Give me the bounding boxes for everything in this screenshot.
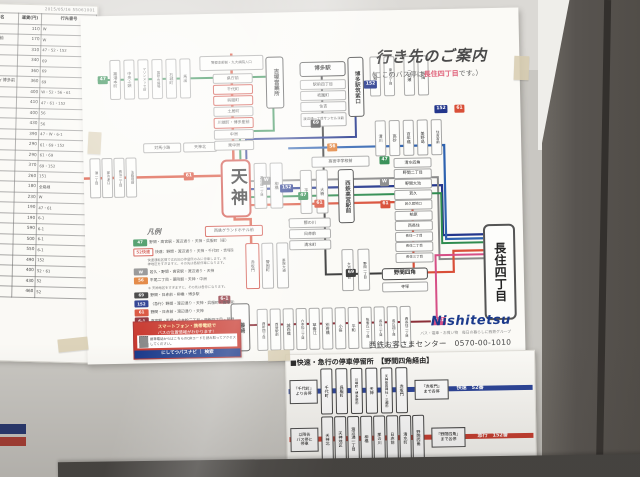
edge-sticker bbox=[0, 437, 26, 446]
route-badge: 47 bbox=[298, 192, 308, 200]
route-line-magenta bbox=[435, 254, 484, 321]
stop-node: 天神 bbox=[220, 159, 251, 218]
stop-node: 渡辺通一丁目 bbox=[254, 163, 268, 209]
stop-node: 千代町 bbox=[213, 84, 253, 95]
stop-node: 築港本町 bbox=[109, 60, 121, 100]
stop-node: 馬出 bbox=[179, 58, 191, 98]
case-frame-right bbox=[542, 0, 640, 477]
stop-node: 博多駅 bbox=[299, 61, 345, 77]
stop-node: 西新四丁目 bbox=[257, 309, 269, 351]
qr-code-icon bbox=[139, 336, 148, 347]
legend-badge: 52快速 bbox=[133, 248, 153, 257]
legend-badge: 47 bbox=[133, 239, 147, 246]
express-stops-panel: ■快速・急行の停車停留所 【野間四角経由】 『千代町』 より各停千代町呉服町川端… bbox=[285, 350, 537, 472]
express-stop: 呉服町 bbox=[335, 368, 348, 414]
stop-node: 六本松二丁目 bbox=[296, 308, 308, 350]
route-badge: 69 bbox=[346, 269, 356, 277]
stop-node: 百年橋 bbox=[403, 120, 415, 156]
stop-node: 対馬小路 bbox=[143, 143, 181, 154]
masking-tape bbox=[514, 56, 530, 81]
masking-tape bbox=[268, 350, 290, 362]
subtitle-post: です。） bbox=[459, 69, 483, 77]
stop-node: 長住三丁目 bbox=[395, 252, 433, 263]
legend-text: 野間・高宮駅・渡辺通り・天神・呉服町（篠） bbox=[149, 238, 229, 246]
legend-text: 野間・日赤前・渡辺通り・天神 bbox=[151, 308, 204, 315]
route-badge: 61 bbox=[380, 200, 390, 208]
stop-node: 石城町 bbox=[165, 59, 177, 99]
route-map-poster: 築港本町中央ふ頭マリンメッセ前国際会議場石城町馬出港一丁目那の津口長浜二丁目法務… bbox=[80, 7, 525, 364]
stop-node: 清水四角 bbox=[393, 157, 431, 168]
stop-node: 法務局前 bbox=[125, 157, 137, 197]
legend-row: 56平尾二丁目・薬院駅・天神・中洲 bbox=[134, 275, 234, 284]
stop-node: マリンメッセ前 bbox=[137, 59, 149, 99]
stop-node: 博多駅筑紫口 bbox=[347, 57, 364, 117]
stop-node: 那の川 bbox=[289, 217, 331, 228]
legend-row: 61野間・日赤前・渡辺通り・天神 bbox=[135, 307, 235, 316]
stop-node: 東中洲 bbox=[214, 140, 254, 151]
stop-node: 若久 bbox=[394, 189, 432, 200]
stop-node: 別府橋 bbox=[322, 307, 334, 349]
route-badge: 61 bbox=[314, 200, 324, 208]
stop-node: 柏原 bbox=[395, 210, 433, 221]
stop-node: 清水町 bbox=[289, 239, 331, 250]
route-badge: W bbox=[262, 177, 271, 185]
stop-node: 住吉宮前 bbox=[431, 119, 443, 155]
express-left-label: 『千代町』 より各停 bbox=[289, 380, 317, 404]
legend-row: 69野間・日赤前・柳橋・博多駅 bbox=[134, 290, 234, 299]
express-row: 『千代町』 より各停千代町呉服町川端町・博多座前天神天神警固神社・三越前赤坂門『… bbox=[288, 365, 533, 415]
legend-row: 152〈急行〉野間・渡辺通り・天神・呉服町・吉塚営業所 bbox=[134, 299, 234, 308]
legend-text: 〈急行〉野間・渡辺通り・天神・呉服町・吉塚営業所 bbox=[150, 299, 234, 307]
stop-node: 那の津口 bbox=[101, 158, 113, 198]
stop-node: 住吉 bbox=[300, 101, 346, 112]
edge-sticker bbox=[0, 424, 26, 434]
stop-node: 西長住 bbox=[395, 220, 433, 231]
legend-note: 快速運転区間では右記の停留所のみに停車します。天神地区をすぎますと、その先は各駅… bbox=[147, 257, 229, 267]
route-badge: 61 bbox=[184, 172, 194, 180]
stop-node: 駅前四丁目 bbox=[300, 79, 346, 90]
legend-badge: W bbox=[134, 269, 148, 276]
frame-groove bbox=[596, 0, 611, 477]
case-frame-bottom bbox=[58, 454, 640, 477]
express-stop: 赤坂門 bbox=[395, 367, 408, 413]
express-right-label: 『赤坂門』 まで各停 bbox=[414, 379, 448, 400]
express-stop: 渡辺通一丁目 bbox=[347, 416, 360, 462]
route-badge: 47 bbox=[98, 76, 108, 84]
stop-node: 長住二丁目 bbox=[395, 241, 433, 252]
legend-row: 52快速快速：野間・渡辺通り・天神・千代町・吉塚営業所 bbox=[133, 246, 233, 257]
stop-node: 平和 bbox=[348, 307, 360, 349]
route-badge: 56 bbox=[327, 143, 337, 151]
express-stop: 千代町 bbox=[320, 368, 333, 414]
stop-node: 警固町 bbox=[261, 243, 274, 289]
stop-node: 中央ふ頭 bbox=[123, 60, 135, 100]
stop-node: 美野島 bbox=[417, 119, 429, 155]
stop-node: 西新駅前 bbox=[270, 308, 282, 350]
express-stop: 天神北 bbox=[321, 416, 334, 462]
fare-col-fare: 運賃(円) bbox=[18, 13, 41, 24]
stop-node: 西鉄高宮駅前 bbox=[338, 169, 355, 223]
stop-node: 薬院大通 bbox=[276, 242, 289, 288]
stop-node: 港一丁目 bbox=[89, 158, 101, 198]
stop-node: 川端町・博多座前 bbox=[214, 117, 254, 129]
express-left-label: 以降各 バス停に 停車 bbox=[290, 428, 318, 452]
stop-node: 若久団地口 bbox=[394, 199, 432, 210]
fare-row: 県庁九大病院前46052 bbox=[0, 285, 90, 299]
stop-node: 警察本部前・九大病院入口 bbox=[199, 55, 263, 71]
stop-node: 清川 bbox=[375, 120, 387, 156]
route-badge: 61 bbox=[454, 105, 464, 113]
stop-node: 土居町 bbox=[213, 106, 253, 117]
legend-text: 若久・野間・高宮駅・渡辺通り・天神 bbox=[150, 268, 215, 275]
legend-text: 野間・日赤前・柳橋・博多駅 bbox=[150, 291, 199, 298]
mobile-info-banner: スマートフォン・携帯電話で バスの位置情報がわかります！ 携帯電話からはこちらの… bbox=[133, 319, 242, 359]
stop-node: 国際会議場 bbox=[151, 59, 163, 99]
bus-stop-information-board: 2015/05/16 55061001 停留所名 運賃(円) 行先番号 博多ふ頭… bbox=[0, 0, 640, 477]
express-stop: 野間四角 bbox=[412, 415, 425, 461]
stop-node: 野間大池 bbox=[394, 178, 432, 189]
stop-node: 高砂 bbox=[389, 120, 401, 156]
express-stop: 天神地区 bbox=[334, 416, 347, 462]
express-stop: 天神 bbox=[365, 368, 378, 414]
express-stop: 清水町 bbox=[399, 415, 412, 461]
legend-text: 快速：野間・渡辺通り・天神・千代町・吉塚営業所 bbox=[155, 247, 234, 255]
legend-row: 47野間・高宮駅・渡辺通り・天神・呉服町（篠） bbox=[133, 237, 233, 246]
stop-node: 野間一丁目 bbox=[357, 249, 370, 291]
stop-node: 吉塚営業所 bbox=[265, 56, 284, 108]
express-stop: 川端町・博多座前 bbox=[350, 368, 363, 414]
legend-text: 平尾二丁目・薬院駅・天神・中洲 bbox=[150, 276, 207, 283]
legend-title: 凡例 bbox=[147, 225, 233, 237]
route-badge: 69 bbox=[311, 120, 321, 128]
stop-node: 日赤前 bbox=[289, 228, 331, 239]
stop-node: 県庁前 bbox=[213, 73, 253, 84]
subtitle-pre: （ここのバス停は bbox=[368, 70, 424, 79]
stop-node: 呉服町 bbox=[213, 95, 253, 106]
route-badge: 152 bbox=[434, 105, 448, 113]
legend: 凡例 47野間・高宮駅・渡辺通り・天神・呉服町（篠）52快速快速：野間・渡辺通り… bbox=[133, 225, 235, 335]
legend-badge: 152 bbox=[134, 300, 148, 307]
express-stop: 那の川 bbox=[373, 415, 386, 461]
masking-tape bbox=[87, 132, 101, 155]
stop-node: 長住一丁目 bbox=[395, 231, 433, 242]
poster-title: 行き先のご案内 bbox=[375, 44, 487, 67]
express-right-label: 『野間四角』 まで各停 bbox=[431, 427, 465, 448]
search-strip: にしてつバスナビ ｜ 検索 bbox=[134, 348, 240, 358]
stop-node: 高宮中学校前 bbox=[311, 156, 369, 168]
nishitetsu-block: Nishitetsu バス・電車・お買い物 毎日の暮らしに西鉄グループ 西鉄お客… bbox=[368, 313, 511, 351]
route-badge: W bbox=[380, 178, 389, 186]
banner-middle: 携帯電話からはこちらのQRコードを読み取ってアクセスしてください。 bbox=[137, 333, 237, 348]
legend-note: ※ 天神地区をすぎますと、その先は各停になります。 bbox=[148, 284, 230, 290]
stop-node: 赤坂門 bbox=[245, 243, 260, 289]
stop-node: 中洲 bbox=[214, 129, 254, 140]
route-badge: 47 bbox=[379, 156, 389, 164]
route-badge: 152 bbox=[364, 80, 378, 88]
stop-node: 野間四角 bbox=[382, 267, 428, 280]
route-badge: 152 bbox=[280, 184, 294, 192]
express-service-label: 急行 152番 bbox=[477, 433, 508, 439]
express-stop: 柳橋 bbox=[360, 416, 373, 462]
stop-node: 寺塚 bbox=[382, 281, 428, 292]
stop-node: 長住四丁目 bbox=[483, 224, 517, 321]
express-stop: 日赤前 bbox=[386, 415, 399, 461]
fare-table-code: 2015/05/16 55061001 bbox=[45, 6, 95, 12]
banner-mid-text: 携帯電話からはこちらのQRコードを読み取ってアクセスしてください。 bbox=[150, 336, 237, 346]
legend-badge: 61 bbox=[135, 309, 149, 316]
stop-node: 草香江 bbox=[309, 308, 321, 350]
stop-node: 長浜二丁目 bbox=[113, 158, 125, 198]
stop-node: 祇園町 bbox=[300, 90, 346, 101]
legend-badge: 69 bbox=[134, 292, 148, 299]
stop-node: 小笹 bbox=[335, 307, 347, 349]
nishitetsu-logo: Nishitetsu bbox=[368, 313, 511, 331]
express-stop: 天神警固神社・三越前 bbox=[380, 367, 393, 413]
stop-node: 城西橋 bbox=[283, 308, 295, 350]
legend-badge: 56 bbox=[134, 277, 148, 284]
legend-row: W若久・野間・高宮駅・渡辺通り・天神 bbox=[134, 267, 234, 276]
fare-col-name: 停留所名 bbox=[0, 12, 19, 24]
subtitle-current-stop: 長住四丁目 bbox=[424, 70, 459, 79]
stop-node: 野間二丁目 bbox=[394, 168, 432, 179]
stop-node: 渡辺通一丁目サンセルコ前 bbox=[300, 112, 346, 127]
express-service-label: 快速 52番 bbox=[457, 386, 484, 391]
stop-node: 天神北 bbox=[183, 142, 217, 153]
